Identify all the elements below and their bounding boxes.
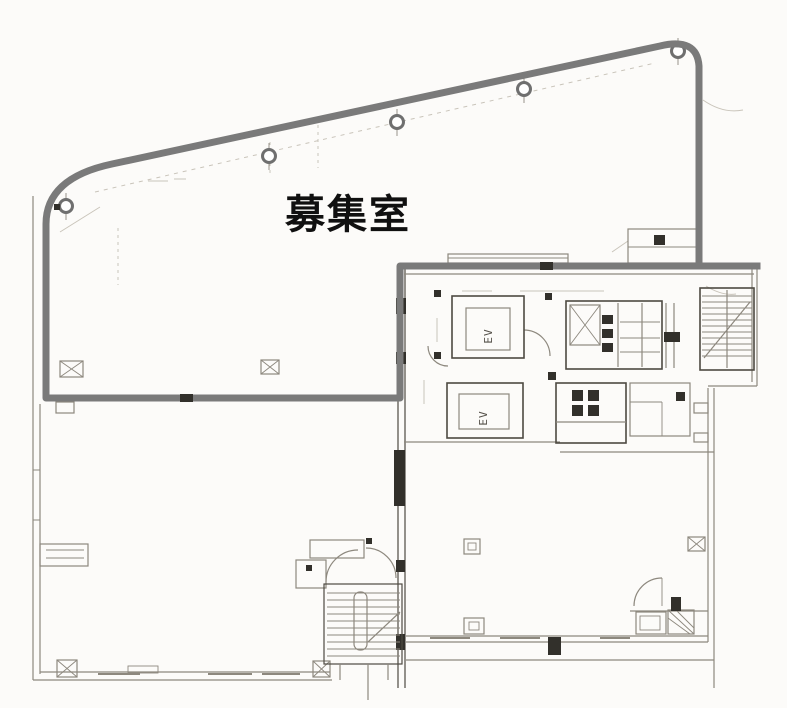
- lower-left-room: [40, 360, 330, 677]
- entry-vestibule: [296, 538, 396, 588]
- right-stairwell: [700, 288, 754, 370]
- elevator-1-label: EV: [482, 328, 495, 343]
- floorplan-page: EV EV: [0, 0, 787, 708]
- upper-restroom: [566, 301, 680, 369]
- elevator-2: EV: [447, 383, 523, 438]
- floorplan-image: EV EV: [0, 0, 787, 708]
- elevator-1: EV: [452, 296, 524, 358]
- center-stairwell: [324, 584, 402, 700]
- elevator-2-label: EV: [477, 410, 490, 425]
- lower-right-room: [430, 403, 708, 655]
- lower-restroom: [556, 383, 690, 443]
- room-title-label: 募集室: [284, 193, 411, 237]
